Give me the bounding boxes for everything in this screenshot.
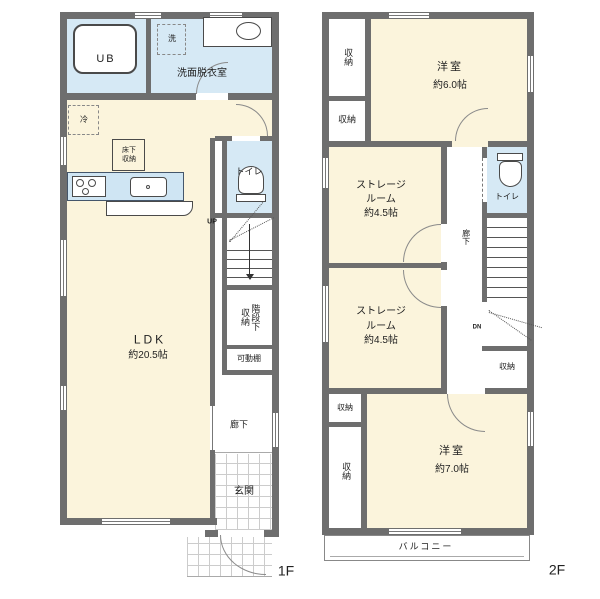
stair-direction-line — [249, 224, 250, 274]
stove-burner — [82, 188, 89, 195]
room-hallway-1f — [215, 375, 272, 452]
wall — [322, 388, 534, 394]
vanity-basin — [236, 22, 261, 40]
window — [323, 158, 328, 188]
label-up: UP — [207, 219, 217, 228]
window — [61, 386, 66, 410]
label-dn: DN — [473, 324, 482, 332]
room-western-7 — [367, 394, 527, 528]
label-fridge: 冷 — [80, 115, 88, 125]
label-floor-1f: 1F — [278, 562, 294, 580]
toilet-tank-2f — [497, 153, 523, 161]
wall — [222, 345, 279, 349]
label-closet: 収納 — [343, 48, 353, 66]
label-closet: 収納 — [499, 362, 515, 372]
wall — [365, 12, 371, 146]
door-opening — [441, 270, 447, 306]
label-movable-shelf: 可動棚 — [237, 354, 261, 364]
entrance-step-line — [215, 452, 272, 453]
label-floor-2f: 2F — [549, 561, 565, 579]
label-storage1-l2: ルーム — [366, 194, 396, 207]
door-opening — [452, 141, 488, 147]
wall — [222, 370, 279, 375]
wall — [222, 285, 279, 290]
label-stair-storage: 階段下収納 — [240, 300, 261, 334]
wall — [322, 141, 534, 147]
stair-treads-2f — [487, 218, 527, 306]
sink-drain — [146, 185, 150, 189]
label-room6-name: 洋室 — [437, 61, 463, 75]
stove-burner — [76, 179, 84, 187]
label-storage2-l3: 約4.5帖 — [364, 335, 398, 348]
window — [528, 56, 533, 92]
label-ldk-name: LDK — [134, 333, 166, 348]
window — [528, 412, 533, 446]
label-toilet-1f: トイレ — [235, 166, 262, 177]
label-toilet-2f: トイレ — [495, 192, 519, 202]
window — [61, 240, 66, 296]
wall — [222, 141, 227, 218]
label-room7-name: 洋室 — [439, 445, 465, 459]
door-opening — [482, 302, 487, 346]
wall — [322, 422, 361, 427]
wall — [60, 93, 279, 100]
toilet-door-2f — [482, 158, 487, 202]
label-entrance: 玄関 — [234, 486, 254, 499]
window — [323, 286, 328, 342]
label-room7-size: 約7.0帖 — [435, 464, 469, 477]
label-washroom: 洗面脱衣室 — [177, 68, 227, 81]
label-ub: UB — [96, 53, 115, 67]
wall — [441, 147, 447, 388]
window — [273, 413, 278, 447]
door-opening — [441, 224, 447, 262]
label-closet: 収納 — [337, 403, 353, 413]
window — [389, 13, 429, 18]
window — [135, 13, 161, 18]
balcony-sliding-door — [389, 529, 461, 534]
label-floor-storage: 床下収納 — [121, 146, 137, 164]
wall — [482, 346, 534, 351]
wall — [322, 96, 365, 101]
label-ldk-size: 約20.5帖 — [128, 350, 167, 363]
wall — [272, 12, 279, 537]
porch-edge — [187, 576, 272, 577]
stove-burner — [88, 179, 96, 187]
label-hallway-1f: 廊下 — [230, 419, 248, 430]
label-closet: 収納 — [341, 462, 351, 480]
wall — [322, 263, 441, 268]
door-opening — [232, 136, 260, 141]
label-storage1-l3: 約4.5帖 — [364, 208, 398, 221]
toilet-tank-1f — [236, 194, 266, 202]
label-storage2-l2: ルーム — [366, 321, 396, 334]
label-closet: 収納 — [338, 114, 356, 125]
stair-direction-arrow — [246, 274, 254, 280]
label-hallway-2f: 廊下 — [461, 229, 470, 245]
wall — [210, 93, 215, 525]
window — [102, 519, 170, 524]
sliding-door — [210, 406, 215, 450]
label-room6-size: 約6.0帖 — [433, 80, 467, 93]
toilet-bowl-2f — [499, 161, 522, 187]
door-opening — [210, 100, 215, 138]
floor-plan-canvas: UB 洗面脱衣室 洗 冷 床下収納 LDK 約20.5帖 トイレ UP 階段下収… — [0, 0, 600, 599]
label-washer: 洗 — [168, 34, 176, 44]
wall — [322, 12, 329, 528]
label-storage2-l1: ストレージ — [356, 306, 406, 319]
window — [61, 137, 66, 165]
door-opening — [196, 93, 228, 100]
balcony-inner-line — [330, 556, 524, 557]
wall — [361, 394, 367, 528]
label-balcony: バルコニー — [399, 541, 454, 552]
kitchen-island — [106, 201, 193, 216]
corridor-2f — [447, 147, 482, 388]
wall — [146, 12, 151, 93]
label-storage1-l1: ストレージ — [356, 180, 406, 193]
